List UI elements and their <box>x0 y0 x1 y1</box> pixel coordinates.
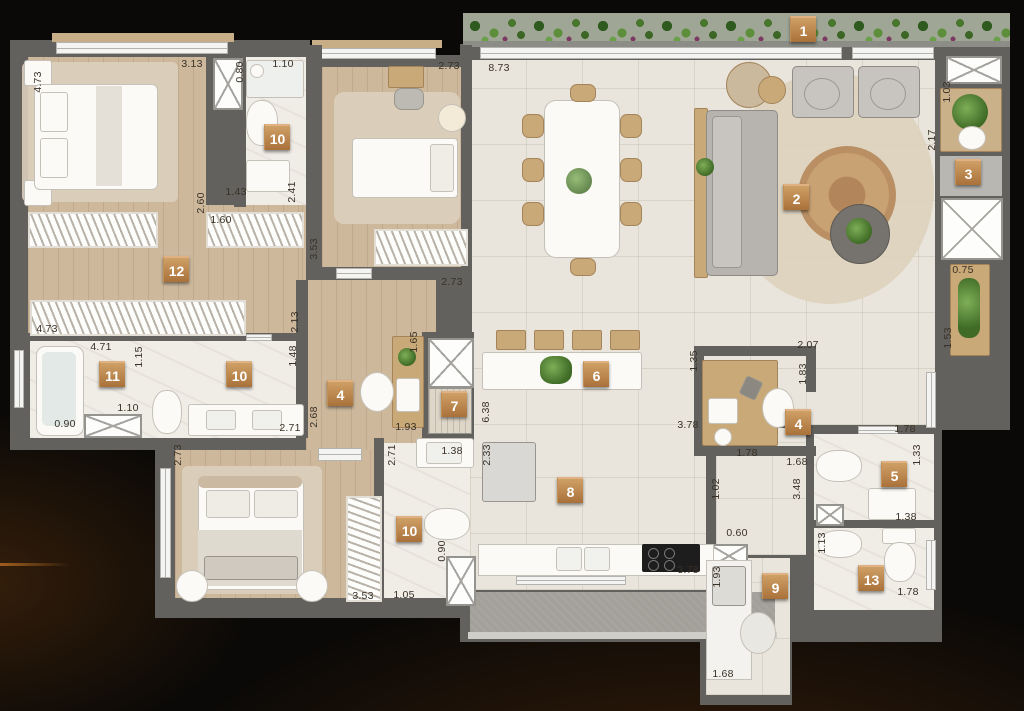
dimension-label: 1.38 <box>895 511 916 523</box>
bed3-pillow-a <box>206 490 250 518</box>
room-tag-2: 2 <box>783 184 809 210</box>
dimension-label: 2.41 <box>286 181 298 202</box>
dimension-label: 2.73 <box>438 60 459 72</box>
room-tag-4: 4 <box>785 409 811 435</box>
bed3-pouf-b <box>296 570 328 602</box>
shaft-top-right <box>946 56 1002 84</box>
dimension-label: 2.73 <box>441 276 462 288</box>
partition-bath13-bottom <box>806 610 942 624</box>
dining-chair-bottom <box>570 258 596 276</box>
dimension-label: 3.53 <box>308 238 320 259</box>
dimension-label: 1.53 <box>942 327 954 348</box>
hall-desk-chair <box>360 372 394 412</box>
dining-chair-l3 <box>522 202 544 226</box>
living-decor-tray <box>758 76 786 104</box>
dining-chair-r1 <box>620 114 642 138</box>
right-shelf-plant-icon <box>958 278 980 338</box>
dimension-label: 1.02 <box>710 478 722 499</box>
bed2-wardrobe <box>374 229 468 266</box>
dimension-label: 1.48 <box>287 345 299 366</box>
dimension-label: 1.68 <box>786 456 807 468</box>
dimension-label: 2.68 <box>308 406 320 427</box>
room-tag-8: 8 <box>557 477 583 503</box>
dimension-label: 1.43 <box>225 186 246 198</box>
dimension-label: 1.10 <box>117 402 138 414</box>
dining-chair-top <box>570 84 596 102</box>
dimension-label: 1.78 <box>894 423 915 435</box>
dimension-label: 3.78 <box>677 564 698 576</box>
dimension-label: 1.35 <box>688 350 700 371</box>
armchair-2-cushion <box>870 78 906 110</box>
room-tag-10: 10 <box>396 516 422 542</box>
room-tag-11: 11 <box>99 361 125 387</box>
dimension-label: 1.38 <box>441 445 462 457</box>
sofa-plant-icon <box>696 158 714 176</box>
burner-4 <box>664 560 675 571</box>
dimension-label: 3.53 <box>352 590 373 602</box>
office-laptop <box>708 398 738 424</box>
dimension-label: 2.07 <box>797 339 818 351</box>
window-bath13-right <box>926 540 936 590</box>
dimension-label: 0.75 <box>952 264 973 276</box>
door-bed2 <box>336 268 372 279</box>
dimension-label: 8.73 <box>488 62 509 74</box>
room-tag-12: 12 <box>163 256 189 282</box>
dimension-label: 1.60 <box>210 214 231 226</box>
sofa-seat-cushions <box>712 116 742 268</box>
dimension-label: 0.80 <box>234 61 246 82</box>
dimension-label: 1.13 <box>816 532 828 553</box>
bath13-toilet-icon <box>884 542 916 582</box>
dimension-label: 1.33 <box>911 444 923 465</box>
bed3-headboard <box>198 476 302 488</box>
dimension-label: 2.71 <box>386 444 398 465</box>
room-tag-3: 3 <box>955 159 981 185</box>
window-bed3 <box>160 468 171 578</box>
room-tag-10: 10 <box>226 361 252 387</box>
island-stool-4 <box>610 330 640 350</box>
armchair-1-cushion <box>804 78 840 110</box>
window-living-right <box>852 47 934 59</box>
dining-chair-r2 <box>620 158 642 182</box>
island-stool-2 <box>534 330 564 350</box>
dimension-label: 1.93 <box>395 421 416 433</box>
island-stool-1 <box>496 330 526 350</box>
dimension-label: 1.78 <box>736 447 757 459</box>
burner-3 <box>648 560 659 571</box>
bed3-wardrobe <box>346 496 382 602</box>
dimension-label: 1.93 <box>711 566 723 587</box>
burner-1 <box>648 548 659 559</box>
room-tag-6: 6 <box>583 361 609 387</box>
bed3-pouf-a <box>176 570 208 602</box>
dimension-label: 2.17 <box>926 129 938 150</box>
dimension-label: 6.38 <box>480 401 492 422</box>
window-tub <box>14 350 24 408</box>
dimension-label: 0.90 <box>54 418 75 430</box>
dimension-label: 2.60 <box>195 192 207 213</box>
bed2-pillow <box>430 144 454 192</box>
dimension-label: 4.73 <box>36 323 57 335</box>
niche-pot-icon <box>958 126 986 150</box>
bed1-blanket <box>96 86 122 186</box>
master-basin-2 <box>252 410 282 430</box>
bed1-pillow-a <box>40 92 68 132</box>
dimension-label: 1.05 <box>393 589 414 601</box>
dimension-label: 4.71 <box>90 341 111 353</box>
dimension-label: 4.73 <box>32 71 44 92</box>
dimension-label: 2.33 <box>481 444 493 465</box>
dimension-label: 1.03 <box>941 81 953 102</box>
dimension-label: 2.73 <box>172 444 184 465</box>
room-tag-1: 1 <box>790 16 816 42</box>
sink-basin-1 <box>556 547 582 571</box>
bed2-chair <box>394 88 424 110</box>
shaft-right-mid <box>941 198 1003 260</box>
window-sill-bed1 <box>52 33 234 42</box>
room-tag-4: 4 <box>327 380 353 406</box>
dimension-label: 1.68 <box>712 668 733 680</box>
window-bed1 <box>56 42 228 54</box>
dimension-label: 1.15 <box>133 346 145 367</box>
bed3-bench <box>204 556 298 580</box>
bed3-pillow-b <box>254 490 298 518</box>
room-tag-5: 5 <box>881 461 907 487</box>
window-corridor-right <box>926 372 936 428</box>
dimension-label: 1.83 <box>797 363 809 384</box>
partition-bed2-bottom-a <box>306 267 338 280</box>
window-sill-bed2 <box>312 40 442 48</box>
dimension-label: 0.90 <box>436 540 448 561</box>
washer <box>740 612 776 654</box>
window-living-balcony <box>480 47 842 59</box>
niche-plant-icon <box>952 94 988 130</box>
shower-box-master <box>84 414 142 438</box>
dimension-label: 3.48 <box>791 478 803 499</box>
side-table-plant-icon <box>846 218 872 244</box>
dining-chair-l2 <box>522 158 544 182</box>
floor-plan-scene: 12344567891010101112134.733.130.801.101.… <box>0 0 1024 711</box>
master-toilet-icon <box>152 390 182 434</box>
dimension-label: 1.78 <box>897 586 918 598</box>
dimension-label: 1.10 <box>272 58 293 70</box>
terrace-door <box>516 576 626 585</box>
hall-desk-laptop <box>396 378 420 412</box>
dining-centerpiece <box>566 168 592 194</box>
dining-chair-l1 <box>522 114 544 138</box>
bath-top-shower-head-icon <box>250 64 264 78</box>
dimension-label: 3.78 <box>677 419 698 431</box>
entry-door <box>318 448 362 461</box>
bathtub-inner <box>42 352 76 426</box>
dimension-label: 2.71 <box>279 422 300 434</box>
closet-rack-3 <box>30 300 246 336</box>
island-plant-icon <box>540 356 572 384</box>
elevator-shaft <box>428 338 474 388</box>
floor-plan: 12344567891010101112134.733.130.801.101.… <box>0 0 1024 711</box>
dimension-label: 1.65 <box>408 331 420 352</box>
door-master-bath <box>246 334 272 341</box>
room-tag-9: 9 <box>762 573 788 599</box>
dining-chair-r3 <box>620 202 642 226</box>
dimension-label: 2.13 <box>289 311 301 332</box>
dimension-label: 0.60 <box>726 527 747 539</box>
duct-bath13 <box>816 504 844 526</box>
bath5-toilet-icon <box>816 450 862 482</box>
dimension-label: 3.13 <box>181 58 202 70</box>
door-bath5 <box>858 426 898 434</box>
bed2-lamp-icon <box>438 104 466 132</box>
room-tag-13: 13 <box>858 565 884 591</box>
master-basin-1 <box>206 410 236 430</box>
window-bed2 <box>318 48 436 59</box>
closet-rack-1 <box>28 212 158 248</box>
bath-bottom-toilet-icon <box>424 508 470 540</box>
shaft-bath-bottom <box>446 556 476 606</box>
burner-2 <box>664 548 675 559</box>
bed1-pillow-b <box>40 138 68 178</box>
island-stool-3 <box>572 330 602 350</box>
office-stool <box>714 428 732 446</box>
bath-top-sink-icon <box>246 160 290 192</box>
room-tag-7: 7 <box>441 391 467 417</box>
bed2-desk <box>388 66 424 88</box>
room-tag-10: 10 <box>264 124 290 150</box>
sink-basin-2 <box>584 547 610 571</box>
